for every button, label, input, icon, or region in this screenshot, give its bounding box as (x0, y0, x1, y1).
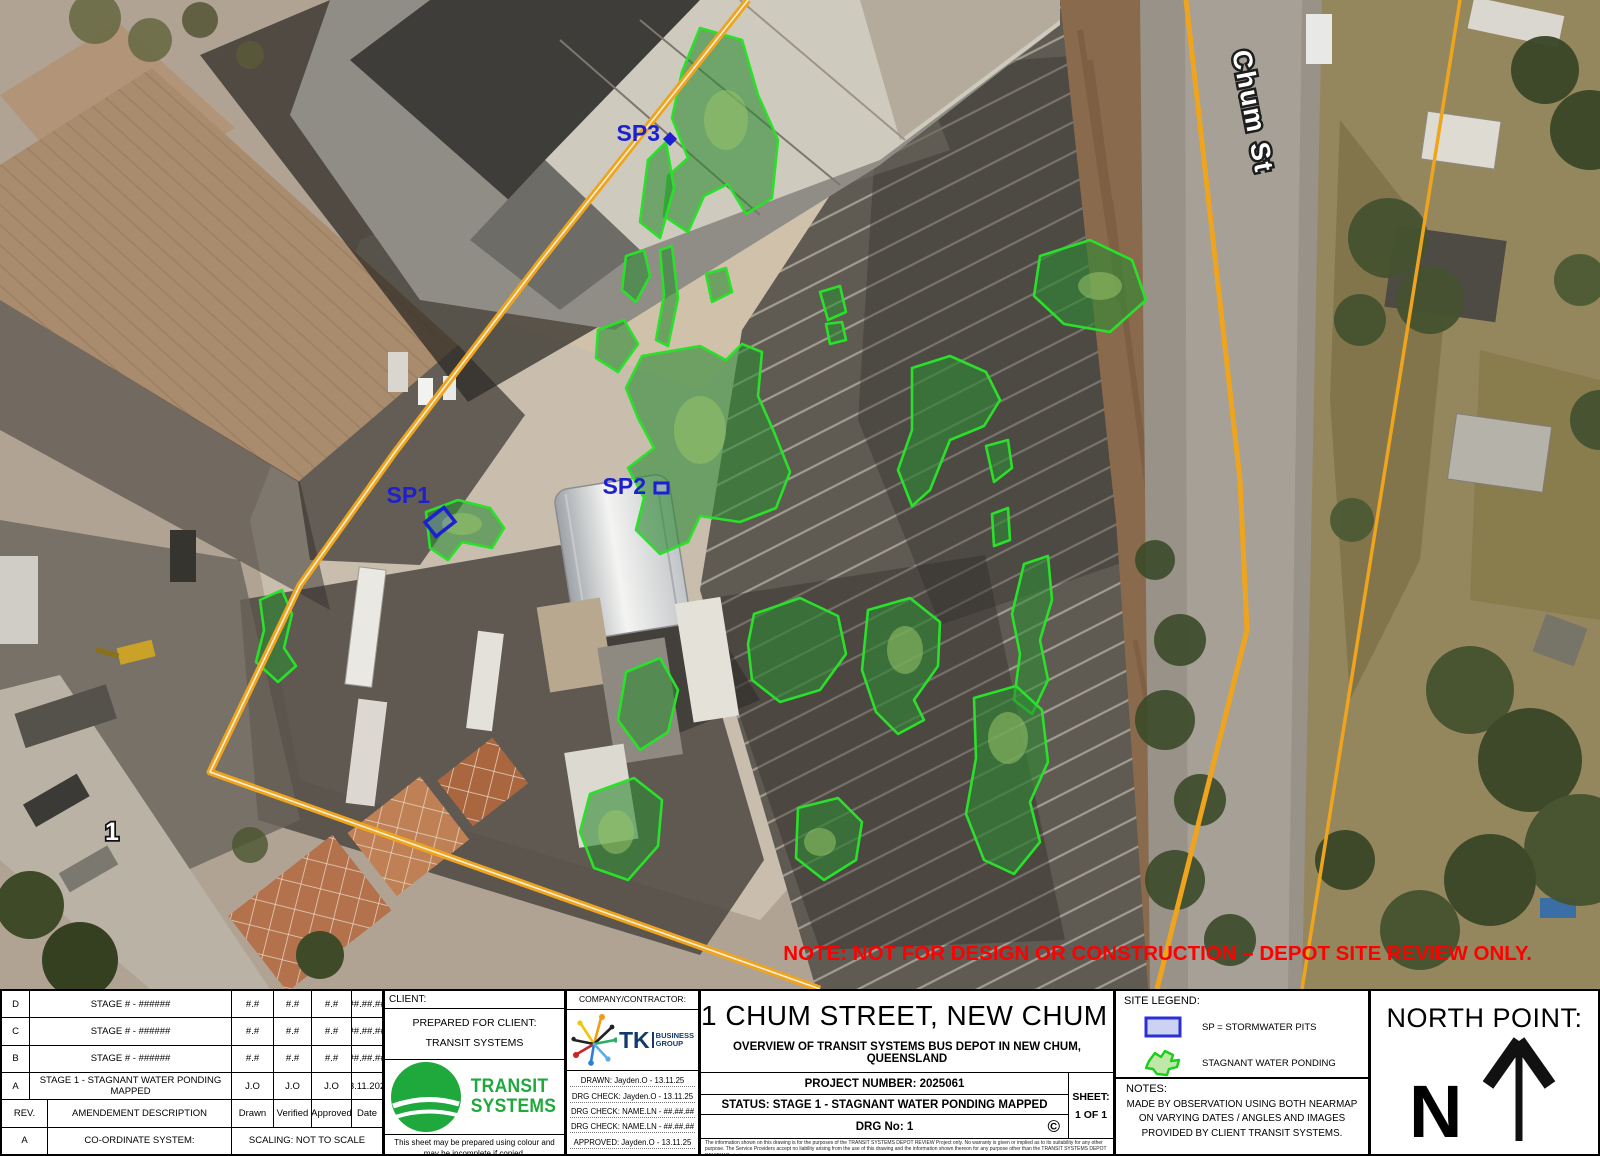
tk-business-group-logo: TK BUSINESS GROUP (567, 1010, 698, 1071)
notes-block: NOTES: MADE BY OBSERVATION USING BOTH NE… (1116, 1079, 1368, 1154)
table-row: D STAGE # - ###### #.# #.# #.# ##.##.## (2, 991, 382, 1018)
title-main: 1 CHUM STREET, NEW CHUM 4303 QLD OVERVIE… (701, 991, 1113, 1073)
sheet-number: SHEET: 1 OF 1 (1069, 1073, 1113, 1138)
stagnant-ponding-swatch-icon (1124, 1047, 1202, 1079)
drawing-sheet: SP1 SP2 SP3 Chum St 1 NOTE: NOT FOR DESI… (0, 0, 1600, 1156)
title-block: 1 CHUM STREET, NEW CHUM 4303 QLD OVERVIE… (700, 989, 1115, 1156)
rev-letter: D (2, 991, 30, 1017)
north-arrow-icon (1474, 1029, 1564, 1147)
notes-header: NOTES: (1120, 1083, 1364, 1095)
legend-item-label: SP = STORMWATER PITS (1202, 1022, 1316, 1033)
client-header: CLIENT: (385, 991, 564, 1009)
legend-block: SITE LEGEND: SP = STORMWATER PITS STAGNA… (1115, 989, 1370, 1156)
table-footer-row: A CO-ORDINATE SYSTEM: SCALING: NOT TO SC… (2, 1128, 382, 1154)
company-block: COMPANY/CONTRACTOR: TK (566, 989, 700, 1156)
project-number: PROJECT NUMBER: 2025061 (701, 1073, 1068, 1095)
drg-check-field: DRG CHECK: NAME.LN - ##.##.## (570, 1107, 695, 1118)
sheet-subtitle: OVERVIEW OF TRANSIT SYSTEMS BUS DEPOT IN… (701, 1041, 1113, 1065)
drg-check-field: DRG CHECK: NAME.LN - ##.##.## (570, 1122, 695, 1133)
sp2-label: SP2 (603, 473, 646, 499)
colour-footnote: This sheet may be prepared using colour … (385, 1134, 564, 1156)
address-1-label: 1 (105, 818, 119, 846)
table-row: B STAGE # - ###### #.# #.# #.# ##.##.## (2, 1046, 382, 1073)
sheet-title: 1 CHUM STREET, NEW CHUM 4303 QLD (701, 1000, 1113, 1032)
legend-item-stormwater: SP = STORMWATER PITS (1124, 1015, 1360, 1039)
status-row: STATUS: STAGE 1 - STAGNANT WATER PONDING… (701, 1095, 1068, 1115)
client-block: CLIENT: PREPARED FOR CLIENT: TRANSIT SYS… (384, 989, 566, 1156)
aerial-map: SP1 SP2 SP3 Chum St 1 NOTE: NOT FOR DESI… (0, 0, 1600, 989)
disclaimer: The information shown on this drawing is… (701, 1138, 1113, 1154)
notes-line: PROVIDED BY CLIENT TRANSIT SYSTEMS. (1120, 1128, 1364, 1139)
tk-logo-text: TK (619, 1027, 650, 1054)
north-letter: N (1409, 1069, 1462, 1154)
sp2-marker (655, 483, 668, 493)
client-name: TRANSIT SYSTEMS (387, 1034, 562, 1054)
company-header: COMPANY/CONTRACTOR: (567, 991, 698, 1010)
notes-line: ON VARYING DATES / ANGLES AND IMAGES (1120, 1113, 1364, 1124)
red-note: NOTE: NOT FOR DESIGN OR CONSTRUCTION – D… (783, 942, 1532, 965)
client-name-box: PREPARED FOR CLIENT: TRANSIT SYSTEMS (385, 1009, 564, 1060)
transit-systems-logo-text: TRANSIT SYSTEMS (471, 1077, 556, 1117)
table-row: A STAGE 1 - STAGNANT WATER PONDING MAPPE… (2, 1073, 382, 1100)
copyright-icon: © (1047, 1117, 1060, 1137)
legend-item-ponding: STAGNANT WATER PONDING (1124, 1047, 1360, 1079)
title-panel: D STAGE # - ###### #.# #.# #.# ##.##.## … (0, 989, 1600, 1156)
sp1-label: SP1 (387, 482, 431, 508)
table-header-row: REV. AMENDEMENT DESCRIPTION Drawn Verifi… (2, 1100, 382, 1127)
revision-table: D STAGE # - ###### #.# #.# #.# ##.##.## … (0, 989, 384, 1156)
approved-field: APPROVED: Jayden.O - 13.11.25 (570, 1138, 695, 1149)
transit-systems-logo: TRANSIT SYSTEMS (385, 1060, 564, 1134)
transit-systems-logo-icon (389, 1060, 463, 1134)
table-row: C STAGE # - ###### #.# #.# #.# ##.##.## (2, 1018, 382, 1045)
legend-item-label: STAGNANT WATER PONDING (1202, 1058, 1336, 1069)
prepared-for-label: PREPARED FOR CLIENT: (387, 1014, 562, 1034)
notes-line: MADE BY OBSERVATION USING BOTH NEARMAP (1120, 1099, 1364, 1110)
tk-starburst-icon (571, 1014, 617, 1066)
stormwater-pit-swatch-icon (1124, 1015, 1202, 1039)
drg-check-field: DRG CHECK: Jayden.O - 13.11.25 (570, 1092, 695, 1103)
rev-description: STAGE # - ###### (30, 991, 232, 1017)
tk-logo-subtext: BUSINESS GROUP (652, 1032, 694, 1049)
drg-no-row: DRG No: 1 © (701, 1115, 1068, 1138)
drawing-credits: DRAWN: Jayden.O - 13.11.25 DRG CHECK: Ja… (567, 1071, 698, 1154)
sp3-label: SP3 (617, 120, 660, 146)
legend-header: SITE LEGEND: (1124, 995, 1360, 1007)
north-point-block: NORTH POINT: N (1370, 989, 1600, 1156)
drawn-field: DRAWN: Jayden.O - 13.11.25 (570, 1076, 695, 1087)
